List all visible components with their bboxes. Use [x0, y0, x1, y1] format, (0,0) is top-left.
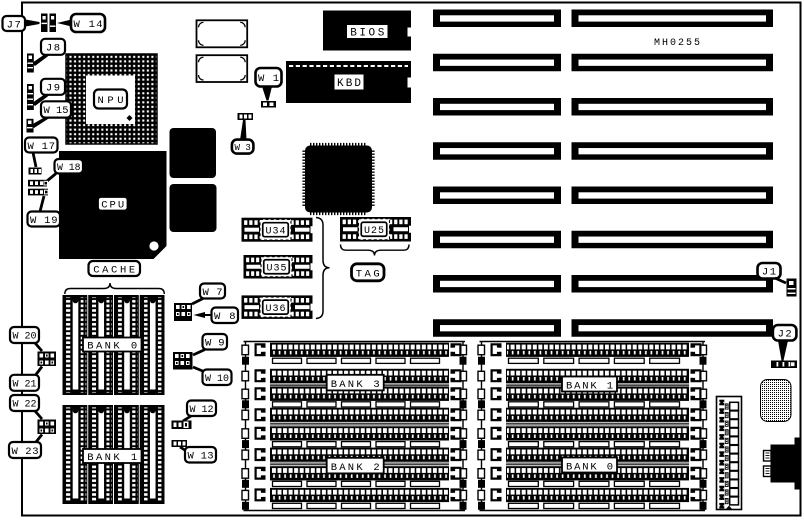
svg-text:NPU: NPU: [98, 95, 124, 107]
svg-text:U36: U36: [266, 304, 286, 315]
svg-text:W 21: W 21: [12, 379, 36, 390]
svg-text:MH0255: MH0255: [654, 38, 700, 49]
svg-text:W 13: W 13: [188, 451, 214, 463]
svg-text:J8: J8: [46, 43, 60, 55]
svg-text:W 23: W 23: [12, 446, 39, 458]
svg-text:W 17: W 17: [28, 141, 56, 153]
svg-text:W 15: W 15: [44, 105, 69, 117]
svg-text:J9: J9: [46, 83, 60, 95]
svg-text:W 1: W 1: [258, 73, 279, 85]
svg-text:J2: J2: [778, 329, 792, 341]
svg-text:CACHE: CACHE: [93, 265, 135, 277]
svg-text:U25: U25: [364, 226, 384, 237]
svg-text:U35: U35: [267, 263, 287, 274]
svg-text:W 12: W 12: [189, 405, 213, 416]
svg-text:W 9: W 9: [205, 338, 225, 350]
svg-text:W 3: W 3: [234, 142, 250, 153]
svg-text:U34: U34: [266, 226, 286, 237]
svg-text:W 18: W 18: [57, 162, 81, 173]
svg-text:CPU: CPU: [101, 200, 124, 212]
svg-text:KBD: KBD: [337, 78, 361, 90]
svg-text:W 8: W 8: [214, 311, 236, 323]
svg-text:W 20: W 20: [12, 332, 36, 343]
svg-text:W 14: W 14: [74, 19, 103, 31]
svg-text:W 22: W 22: [12, 400, 36, 411]
svg-text:W 19: W 19: [30, 215, 58, 227]
svg-text:J1: J1: [762, 267, 776, 279]
svg-text:J7: J7: [7, 19, 21, 31]
svg-text:W 7: W 7: [203, 287, 223, 299]
svg-text:W 10: W 10: [205, 374, 229, 385]
svg-text:TAG: TAG: [356, 269, 380, 281]
